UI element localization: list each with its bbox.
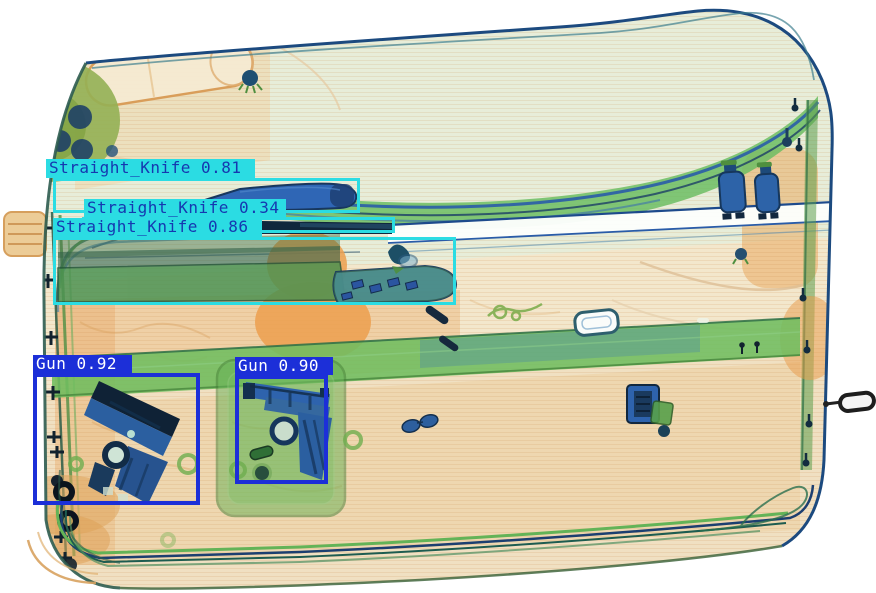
detection-box-gun-092 xyxy=(33,373,200,505)
detection-label-straight-knife-086: Straight_Knife 0.86 xyxy=(53,218,262,237)
detection-box-straight-knife-086 xyxy=(53,237,456,305)
detection-box-gun-090 xyxy=(235,375,328,484)
detection-label-gun-090: Gun 0.90 xyxy=(235,357,333,375)
xray-scan-viewer: Straight_Knife 0.81Straight_Knife 0.34St… xyxy=(0,0,876,593)
detection-label-straight-knife-034: Straight_Knife 0.34 xyxy=(84,199,286,217)
detection-label-gun-092: Gun 0.92 xyxy=(33,355,132,373)
detections-layer: Straight_Knife 0.81Straight_Knife 0.34St… xyxy=(0,0,876,593)
detection-label-straight-knife-081: Straight_Knife 0.81 xyxy=(46,159,255,178)
